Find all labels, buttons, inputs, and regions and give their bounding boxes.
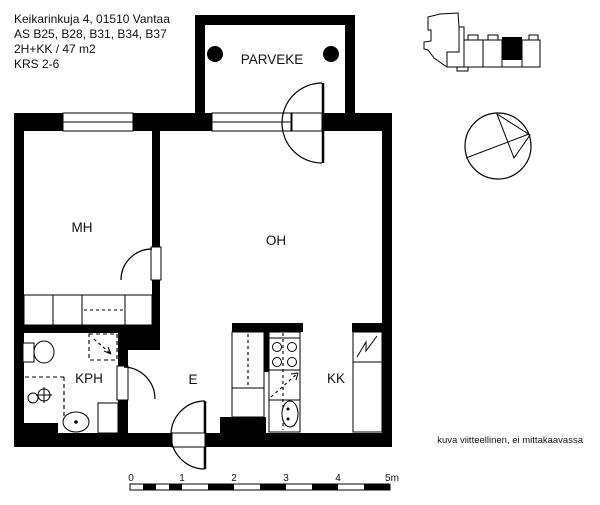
wall-step-shower bbox=[14, 423, 58, 433]
wall-kph-right-upper bbox=[118, 350, 128, 366]
wall-outer-bottom-left bbox=[14, 433, 172, 447]
scale-label-4: 4 bbox=[335, 473, 341, 484]
wall-outer-top-a bbox=[14, 113, 63, 131]
wall-outer-left bbox=[14, 113, 24, 447]
header-address: Keikarinkuja 4, 01510 Vantaa bbox=[14, 12, 170, 26]
kitchen-sink-icon bbox=[282, 401, 298, 427]
kitchen-sink-dot-1 bbox=[287, 408, 290, 411]
building-bump-2 bbox=[488, 35, 498, 40]
balcony-pillar-right bbox=[323, 46, 339, 62]
washer-diagonal bbox=[94, 339, 111, 354]
building-bump-3 bbox=[529, 35, 538, 40]
scale-label-1: 1 bbox=[179, 473, 185, 484]
scale-seg-3 bbox=[208, 484, 234, 490]
disclaimer-note: kuva viitteellinen, ei mittakaavassa bbox=[437, 435, 583, 446]
scale-label-3: 3 bbox=[283, 473, 289, 484]
header-apartment-type: 2H+KK / 47 m2 bbox=[14, 42, 96, 56]
toilet-bowl bbox=[34, 341, 54, 363]
wall-outer-right bbox=[382, 113, 392, 447]
building-bump-1 bbox=[468, 35, 478, 40]
fridge-icon bbox=[353, 332, 382, 432]
compass-needle-line bbox=[466, 134, 529, 158]
shower-area-icon bbox=[25, 377, 64, 421]
scale-label-0: 0 bbox=[128, 473, 134, 484]
bathroom-fixtures-group bbox=[23, 334, 118, 433]
washing-machine-reservation-icon bbox=[89, 334, 117, 360]
wall-outer-top-b bbox=[133, 113, 212, 131]
wall-step-kitchen bbox=[220, 417, 266, 433]
wall-kk-stub-right bbox=[352, 323, 383, 332]
entry-door-threshold bbox=[172, 433, 205, 447]
apartment-location-highlight bbox=[502, 37, 522, 60]
fridge-body bbox=[353, 332, 382, 432]
toilet-tank bbox=[23, 343, 34, 362]
scale-seg-5 bbox=[312, 484, 338, 490]
scale-seg-2 bbox=[169, 484, 182, 490]
scale-bar: 0 1 2 3 4 5m bbox=[128, 473, 399, 490]
compass-icon bbox=[465, 113, 531, 179]
shower-handle bbox=[28, 393, 38, 403]
site-plan-group bbox=[424, 13, 540, 71]
balcony-wall-right bbox=[345, 15, 355, 115]
wall-outer-top-c bbox=[322, 113, 392, 131]
bedroom-door-leaf bbox=[151, 247, 161, 280]
floor-plan-drawing: 0 1 2 3 4 5m Keikarinkuja 4, 01510 Vanta… bbox=[0, 0, 600, 505]
toilet-icon bbox=[23, 341, 54, 363]
header-floors: KRS 2-6 bbox=[14, 57, 60, 71]
wall-kitchen-stub-mid bbox=[264, 332, 269, 372]
room-label-bathroom: KPH bbox=[75, 371, 103, 386]
balcony-pillar-left bbox=[207, 46, 223, 62]
kitchen-sink-dot-2 bbox=[287, 418, 290, 421]
balcony-door-threshold bbox=[292, 113, 322, 131]
building-outline bbox=[424, 13, 540, 67]
scale-label-2: 2 bbox=[231, 473, 237, 484]
wall-mh-oh-upper bbox=[152, 131, 160, 247]
scale-seg-4 bbox=[260, 484, 286, 490]
scale-label-5: 5m bbox=[385, 473, 399, 484]
header-block: Keikarinkuja 4, 01510 Vantaa AS B25, B28… bbox=[14, 12, 170, 71]
bathroom-cabinet bbox=[98, 403, 118, 433]
room-labels-group: PARVEKE MH OH KPH E KK bbox=[72, 52, 346, 387]
bathroom-door-arc bbox=[124, 367, 155, 399]
kitchen-sink-basin bbox=[282, 401, 298, 427]
kitchen-tall-cabinet bbox=[232, 332, 264, 417]
balcony-wall-top bbox=[195, 15, 355, 25]
scale-seg-1 bbox=[143, 484, 156, 490]
wall-e-corner-block bbox=[118, 325, 160, 350]
room-label-entry: E bbox=[188, 372, 197, 387]
building-bottom-tab bbox=[457, 67, 468, 71]
wardrobe-group bbox=[24, 295, 152, 325]
balcony-wall-left bbox=[195, 15, 205, 115]
kitchen-fixtures-group bbox=[232, 332, 382, 432]
bathroom-door-leaf bbox=[117, 366, 128, 400]
wall-outer-bottom-right bbox=[205, 433, 392, 447]
room-label-kitchenette: KK bbox=[327, 371, 345, 386]
wall-kph-right-lower bbox=[118, 400, 128, 433]
wall-kitchen-stub-top bbox=[232, 323, 303, 332]
bathroom-sink-drain bbox=[74, 420, 78, 424]
wardrobe-row bbox=[24, 295, 152, 325]
room-label-bedroom: MH bbox=[72, 220, 93, 235]
floor-plan-page: 0 1 2 3 4 5m Keikarinkuja 4, 01510 Vanta… bbox=[0, 0, 600, 505]
scale-seg-6 bbox=[364, 484, 390, 490]
bedroom-door-arc bbox=[121, 249, 152, 280]
room-label-living-room: OH bbox=[266, 233, 286, 248]
header-apartments: AS B25, B28, B31, B34, B37 bbox=[14, 27, 167, 41]
room-label-balcony: PARVEKE bbox=[241, 52, 304, 67]
